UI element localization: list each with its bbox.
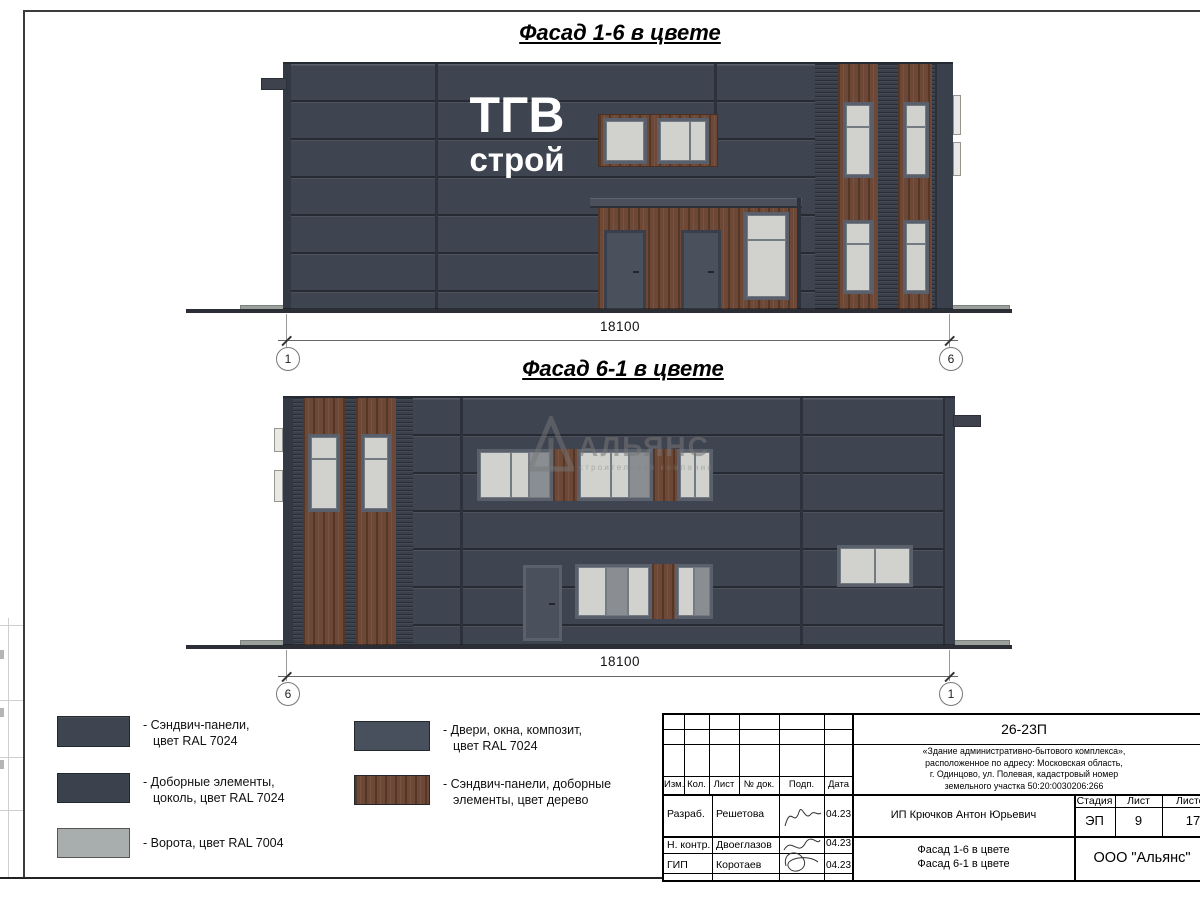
margin-mark	[0, 760, 4, 769]
window-pane	[846, 223, 870, 244]
tb-line	[824, 715, 825, 880]
window	[361, 434, 391, 512]
window	[837, 545, 913, 587]
window-pane	[606, 121, 644, 161]
window-pane	[846, 244, 870, 291]
tb-date: 04.23	[824, 809, 853, 820]
window	[744, 212, 789, 300]
tb-header-izm: Изм.	[664, 779, 684, 790]
tb-line	[664, 744, 1200, 745]
window-pane	[695, 452, 710, 498]
tb-header-podp: Подп.	[779, 779, 824, 790]
downspout	[274, 470, 283, 502]
margin-line	[0, 625, 23, 626]
tb-stage-value: ЭП	[1074, 813, 1115, 828]
downspout	[274, 428, 283, 452]
window-pane	[311, 437, 337, 459]
tb-company: ООО "Альянс"	[1074, 850, 1200, 866]
tb-sheet-value: 9	[1115, 813, 1162, 828]
wall-logo-line2: строй	[427, 143, 607, 176]
margin-mark	[0, 650, 4, 659]
tb-header-doc: № док.	[739, 779, 779, 790]
tb-header-kol: Кол.	[684, 779, 709, 790]
tb-line	[664, 853, 853, 854]
entrance-door	[604, 230, 646, 312]
tb-sheet-label: Лист	[1115, 795, 1162, 807]
corner-trim	[943, 398, 955, 648]
margin-line	[0, 810, 23, 811]
window-pane	[680, 452, 695, 498]
wood-pier	[553, 449, 577, 501]
panel-joint	[714, 64, 717, 114]
tb-header-data: Дата	[824, 779, 853, 790]
wall-logo-line1: ТГВ	[427, 90, 607, 140]
window-pane	[611, 452, 629, 498]
signature	[778, 832, 824, 878]
door-handle	[633, 271, 639, 273]
tb-project-description: «Здание административно-бытового комплек…	[859, 746, 1189, 792]
entrance-door	[523, 565, 562, 641]
window-pane	[660, 121, 690, 161]
tb-sheets-value: 17	[1162, 813, 1200, 828]
window-pane	[906, 105, 926, 127]
facade2-title: Фасад 6-1 в цвете	[283, 356, 963, 382]
window-pane	[906, 127, 926, 175]
tb-stage-label: Стадия	[1074, 795, 1115, 807]
window	[843, 220, 873, 294]
door-handle	[549, 603, 555, 605]
tb-name: Коротаев	[716, 859, 761, 871]
window-pane	[840, 548, 875, 584]
margin-line	[0, 757, 23, 758]
window	[903, 102, 929, 178]
tb-role: ГИП	[667, 859, 688, 871]
window-pane	[906, 244, 926, 291]
sheet-frame-left	[23, 10, 25, 878]
window-pane	[678, 567, 694, 616]
tb-project-code: 26-23П	[853, 721, 1195, 737]
window-pane	[875, 548, 910, 584]
legend-label: - Ворота, цвет RAL 7004	[143, 836, 373, 852]
window-pane	[694, 567, 710, 616]
corner-trim	[283, 64, 291, 312]
facade1-building: ТГВ строй	[283, 62, 953, 310]
sheet-frame-top	[23, 10, 1200, 12]
margin-line	[0, 700, 23, 701]
legend-swatch-trim	[57, 773, 130, 803]
wood-pier	[653, 449, 677, 501]
drawing-sheet: Фасад 1-6 в цвете ТГВ строй	[0, 0, 1200, 900]
gutter-stub	[953, 415, 981, 427]
legend-label: - Сэндвич-панели, доборные элементы, цве…	[443, 777, 663, 808]
corner-trim	[935, 64, 953, 312]
window-pane	[529, 452, 550, 498]
window-pane	[578, 567, 606, 616]
tb-date: 04.23	[824, 860, 853, 871]
tb-line	[664, 776, 853, 777]
tb-role: Разраб.	[667, 808, 705, 820]
window-pane	[606, 567, 628, 616]
window	[603, 118, 647, 164]
tb-role: Н. контр.	[667, 839, 710, 851]
downspout	[953, 95, 961, 135]
window-pane	[628, 567, 650, 616]
window	[675, 564, 713, 619]
dimension-line	[278, 676, 958, 677]
dimension-value: 18100	[520, 654, 720, 669]
tb-drawing-title: Фасад 1-6 в цвете Фасад 6-1 в цвете	[853, 843, 1074, 871]
wall-logo: ТГВ строй	[427, 90, 607, 176]
downspout	[953, 142, 961, 176]
facade1-groundline	[186, 309, 1012, 313]
window	[577, 449, 653, 501]
window	[903, 220, 929, 294]
window	[477, 449, 553, 501]
legend-swatch-doors-windows	[354, 721, 430, 751]
facade1-title: Фасад 1-6 в цвете	[280, 20, 960, 46]
axis-marker: 1	[939, 682, 963, 706]
window-pane	[906, 223, 926, 244]
window	[657, 118, 709, 164]
legend-label: - Сэндвич-панели, цвет RAL 7024	[143, 718, 343, 749]
window	[843, 102, 873, 178]
tb-line	[664, 873, 853, 874]
margin-mark	[0, 708, 4, 717]
corner-trim	[283, 398, 293, 648]
facade2-groundline	[186, 645, 1012, 649]
dimension-value: 18100	[520, 319, 720, 334]
entrance-canopy	[590, 198, 802, 208]
window-pane	[690, 121, 706, 161]
facade2-building	[283, 396, 955, 646]
wood-pier	[652, 564, 675, 619]
axis-marker: 6	[276, 682, 300, 706]
window-pane	[511, 452, 529, 498]
legend-swatch-wood	[354, 775, 430, 805]
legend-swatch-sandwich-panel	[57, 716, 130, 747]
window-pane	[580, 452, 611, 498]
window-pane	[846, 127, 870, 175]
panel-joint	[460, 398, 463, 648]
wood-entrance-section	[598, 208, 797, 312]
tb-name: Двоеглазов	[716, 839, 772, 851]
tb-line	[664, 729, 853, 730]
entrance-door	[681, 230, 721, 312]
window-pane	[747, 240, 786, 297]
gutter-stub	[261, 78, 287, 90]
window-pane	[364, 437, 388, 459]
tb-name: Решетова	[716, 808, 764, 820]
tb-line	[664, 836, 1200, 838]
legend-label: - Доборные элементы, цоколь, цвет RAL 70…	[143, 775, 343, 806]
window-pane	[364, 459, 388, 509]
canopy-support	[797, 198, 801, 312]
margin-line	[8, 618, 9, 877]
dimension-line	[278, 340, 958, 341]
title-block: Изм. Кол. Лист № док. Подп. Дата Разраб.…	[662, 713, 1200, 882]
tb-date: 04.23	[824, 838, 853, 849]
wood-band	[598, 114, 718, 167]
signature	[781, 798, 823, 834]
window-pane	[846, 105, 870, 127]
window-pane	[747, 215, 786, 240]
window	[575, 564, 652, 619]
window-pane	[480, 452, 511, 498]
window-pane	[629, 452, 650, 498]
tb-line	[1074, 807, 1200, 808]
legend-swatch-gate	[57, 828, 130, 858]
legend-label: - Двери, окна, композит, цвет RAL 7024	[443, 723, 653, 754]
panel-joint	[800, 398, 803, 648]
window	[677, 449, 713, 501]
window-pane	[311, 459, 337, 509]
door-handle	[708, 271, 714, 273]
tb-client: ИП Крючков Антон Юрьевич	[853, 809, 1074, 821]
tb-header-list: Лист	[709, 779, 739, 790]
window	[308, 434, 340, 512]
tb-sheets-label: Листов	[1162, 795, 1200, 807]
